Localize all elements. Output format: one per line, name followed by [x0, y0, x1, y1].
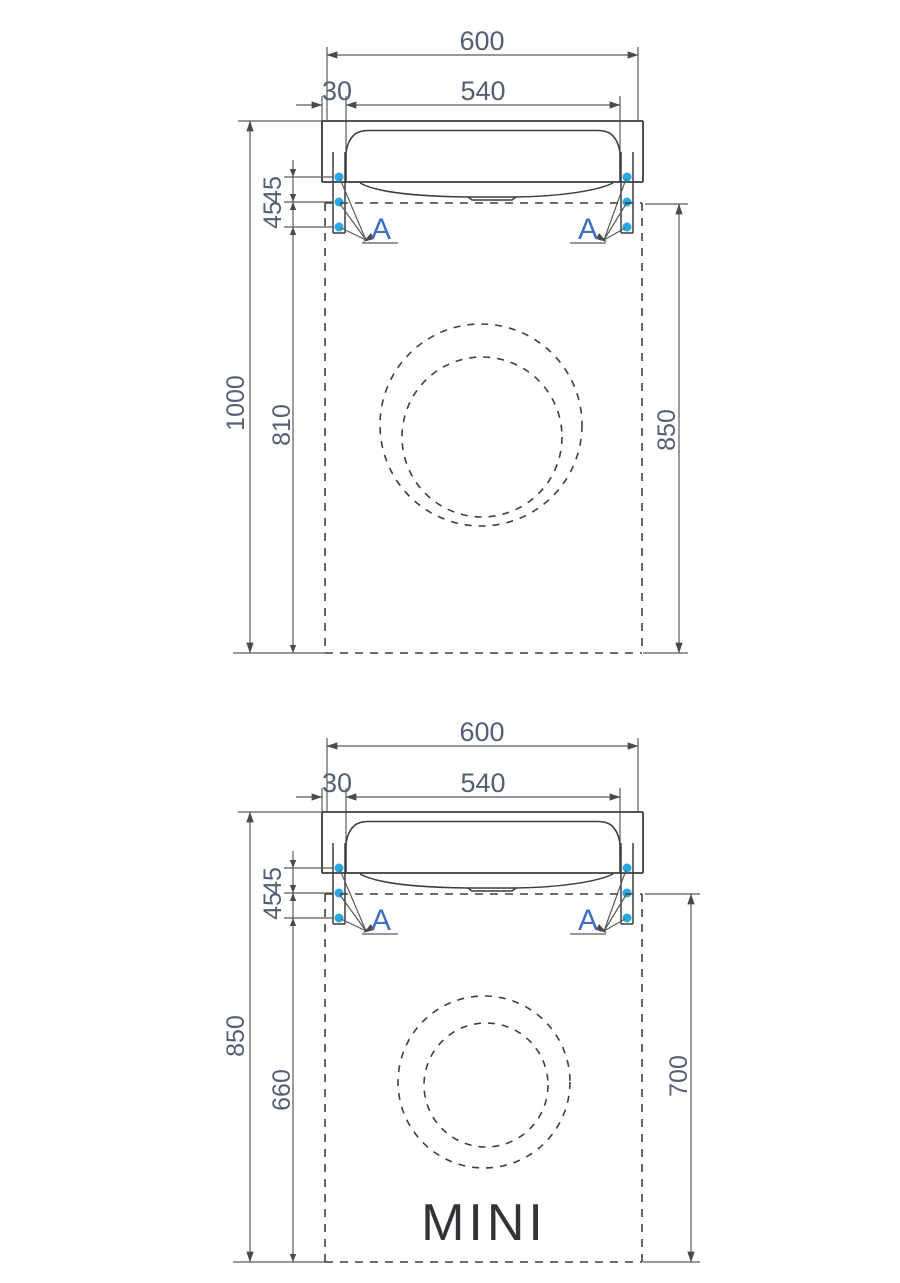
drum-circle-outer	[380, 324, 582, 526]
dim-total-width: 600	[459, 717, 504, 747]
mounting-dot	[335, 198, 344, 207]
dim-hole-offset: 30	[322, 768, 352, 798]
detail-label-left: A	[371, 213, 391, 246]
dim-total-width: 600	[459, 26, 504, 56]
mounting-dot	[623, 198, 632, 207]
detail-callout-left: A	[340, 179, 398, 246]
detail-callout-left: A	[340, 870, 398, 937]
dim-bracket-to-floor: 660	[268, 1069, 296, 1111]
mounting-dot	[623, 173, 632, 182]
mounting-dot	[623, 223, 632, 232]
dim-hole-gap-1: 45	[259, 867, 287, 895]
dim-hole-offset: 30	[322, 76, 352, 106]
dim-overall-height: 1000	[222, 375, 250, 431]
dim-hole-spacing: 540	[460, 768, 505, 798]
detail-callout-right: A	[570, 179, 626, 246]
dim-bracket-to-floor: 810	[268, 404, 296, 446]
detail-label-right: A	[578, 213, 598, 246]
drum-circle-inner	[424, 1023, 548, 1147]
dim-hole-gap-2: 45	[259, 892, 287, 920]
mounting-dot	[335, 914, 344, 923]
bracket-right	[621, 152, 633, 233]
sink-bowl-opening	[346, 131, 620, 183]
mounting-dot	[335, 223, 344, 232]
sink-bowl-opening	[346, 822, 620, 874]
detail-callout-right: A	[570, 870, 626, 937]
drum-circle-inner	[402, 357, 562, 517]
bracket-left	[333, 843, 345, 924]
variant-label: MINI	[421, 1194, 547, 1252]
bracket-left	[333, 152, 345, 233]
mounting-dot	[623, 914, 632, 923]
mounting-dot	[335, 864, 344, 873]
dim-hole-gap-2: 45	[259, 201, 287, 229]
sink-bowl-underside	[360, 183, 613, 197]
mounting-dot	[335, 173, 344, 182]
bracket-right	[621, 843, 633, 924]
dim-hole-gap-1: 45	[259, 176, 287, 204]
dim-machine-height: 850	[653, 409, 681, 451]
dim-overall-height: 850	[222, 1015, 250, 1057]
sink-bowl-underside	[360, 874, 613, 888]
dim-machine-height: 700	[665, 1055, 693, 1097]
dim-hole-spacing: 540	[460, 76, 505, 106]
drawing-standard-model: 600 30 540	[222, 26, 688, 653]
mounting-dot	[335, 889, 344, 898]
detail-label-left: A	[371, 904, 391, 937]
mounting-dot	[623, 889, 632, 898]
technical-drawing-page: 600 30 540	[0, 0, 900, 1283]
washing-machine-outline	[325, 203, 642, 653]
drawing-mini-model: 600 30 540	[222, 717, 700, 1262]
detail-label-right: A	[578, 904, 598, 937]
mounting-dot	[623, 864, 632, 873]
sink-dimension-drawing: 600 30 540	[0, 0, 900, 1283]
